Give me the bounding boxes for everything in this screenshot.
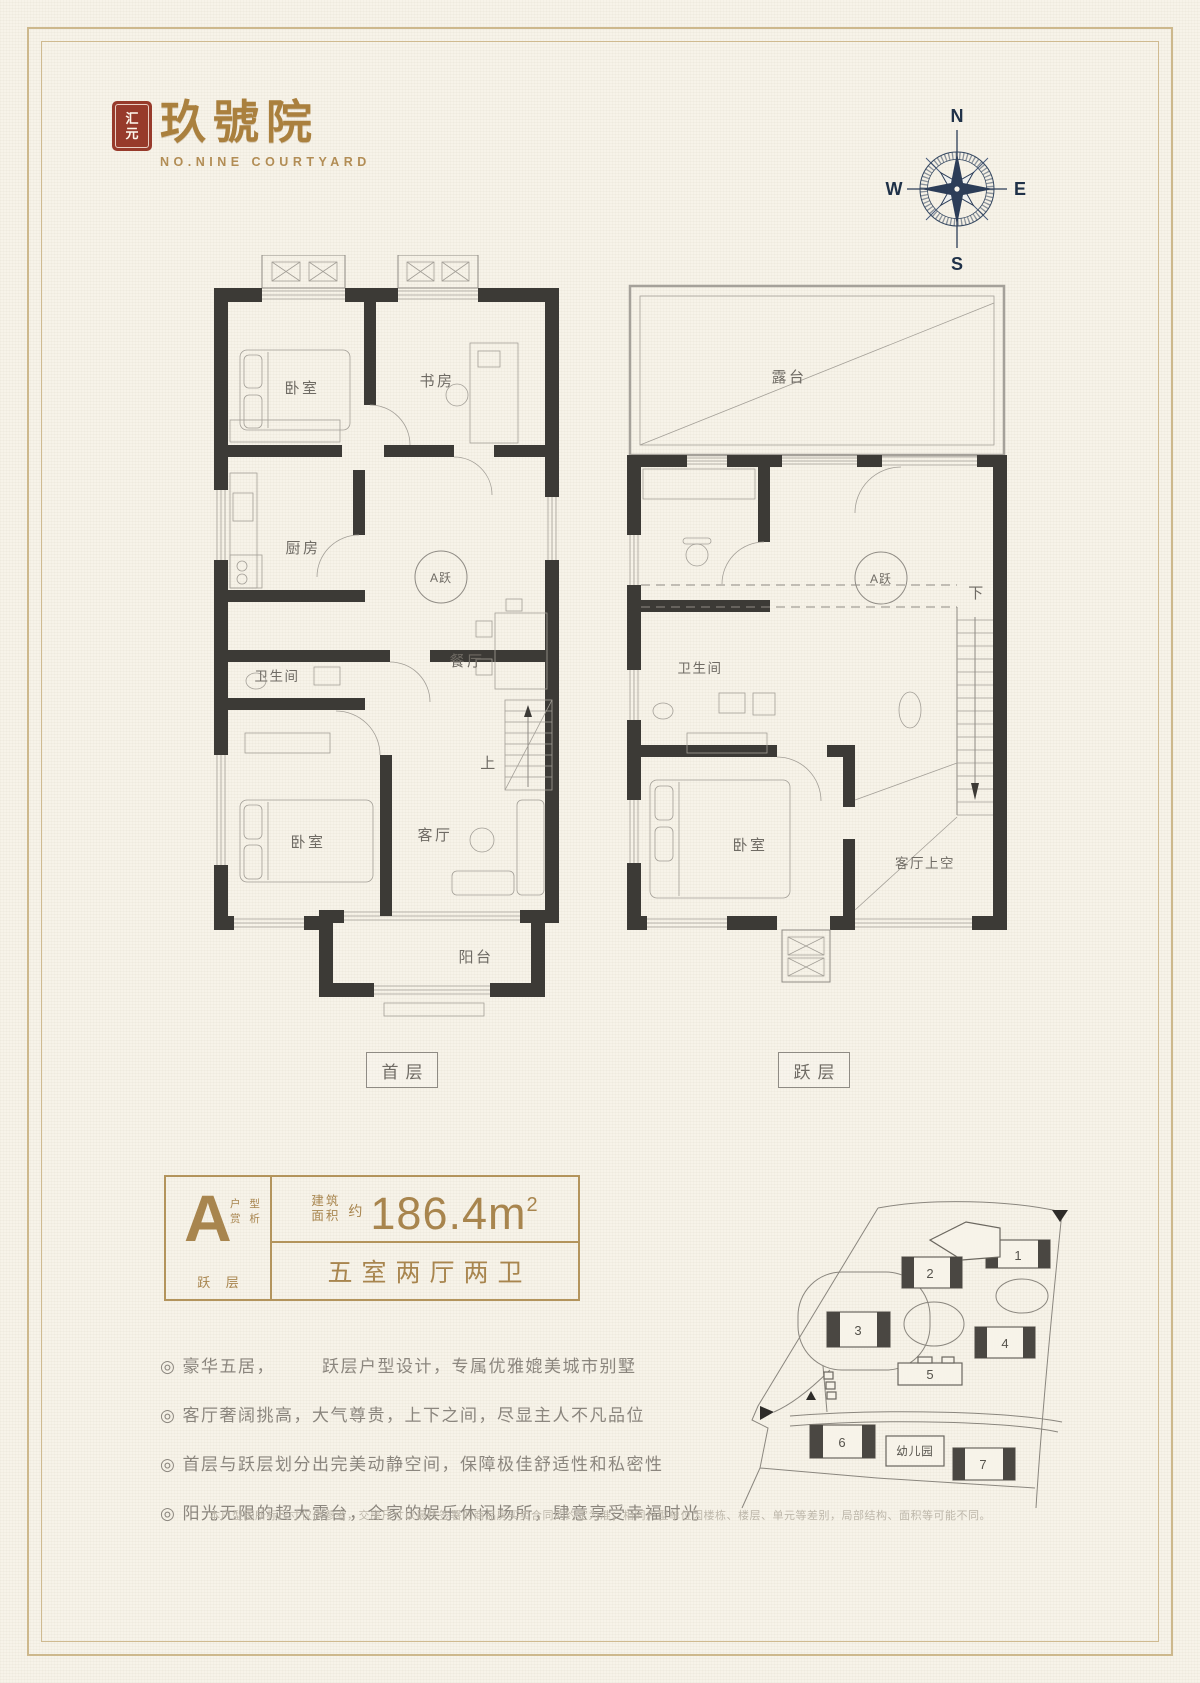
floor1-bath-label: 卫生间 [255, 669, 300, 684]
unit-info-block: A 户 型赏 析 跃 层 建筑面积 约 186.4m2 五室两厅两卫 [164, 1175, 580, 1301]
brand-subtitle: NO.NINE COURTYARD [160, 155, 460, 169]
building-3: 3 [827, 1312, 890, 1347]
building-6-number: 6 [838, 1435, 845, 1450]
floor2-stairs-down-label: 下 [968, 585, 986, 602]
entrance-marker-icon [760, 1406, 774, 1420]
unit-area-cell: 建筑面积 约 186.4m2 五室两厅两卫 [272, 1177, 578, 1299]
area-number: 186.4m [370, 1188, 526, 1239]
floor2-tag-text: 跃层 [787, 1058, 842, 1083]
floor1-bedroom-bottom-label: 卧室 [290, 834, 325, 851]
unit-area-approx: 约 [348, 1201, 362, 1221]
floor1-balcony-label: 阳台 [458, 949, 493, 966]
floor1-stairs-up-label: 上 [480, 755, 498, 772]
bay-window-icon [262, 255, 345, 288]
loft-floor-plan: 露台 [627, 255, 1007, 1020]
building-7-number: 7 [979, 1457, 986, 1472]
unit-area-label: 建筑面积 [311, 1194, 340, 1224]
feature-item: ◎ 豪华五居， 跃层户型设计，专属优雅媲美城市别墅 [160, 1352, 700, 1377]
building-4: 4 [975, 1327, 1035, 1358]
compass-east-label: E [1014, 179, 1026, 199]
building-5-number: 5 [926, 1367, 933, 1382]
compass-west-label: W [886, 179, 903, 199]
bay-window-icon [398, 255, 478, 288]
floor1-tag: 首层 [366, 1052, 438, 1088]
stairs-down-icon [957, 607, 993, 815]
floorplan-poster: { "logo": { "seal_top": "汇", "seal_botto… [0, 0, 1200, 1683]
entrance-marker-icon [806, 1391, 816, 1400]
floor2-bedroom-label: 卧室 [732, 837, 767, 854]
floor1-kitchen-label: 厨房 [285, 540, 320, 557]
disclaimer-text: 本户型图所标尺寸仅供参考，交房尺寸以最终签署的商品房买卖合同的约定为准；相同户型… [0, 1507, 1200, 1523]
floor1-study-label: 书房 [419, 373, 454, 390]
building-7: 7 [953, 1448, 1015, 1480]
brand-seal: 汇 元 [112, 101, 152, 151]
unit-type-letter: A [184, 1185, 232, 1251]
floor2-bath-label: 卫生间 [678, 661, 723, 676]
building-2: 2 [902, 1222, 1000, 1288]
floor1-unit-badge: A跃 [430, 571, 452, 585]
seal-char-bottom: 元 [125, 127, 138, 141]
building-4-number: 4 [1001, 1336, 1008, 1351]
unit-type-caption-row1: 户 型 [230, 1198, 263, 1210]
compass-north-label: N [951, 106, 964, 126]
unit-layout: 五室两厅两卫 [272, 1243, 578, 1299]
floor2-living-void-label: 客厅上空 [895, 855, 955, 871]
stairs-up-icon [505, 700, 552, 790]
floor2-tag: 跃层 [778, 1052, 850, 1088]
bay-window-icon [782, 930, 830, 982]
feature-item: ◎ 首层与跃层划分出完美动静空间，保障极佳舒适性和私密性 [160, 1450, 700, 1475]
building-3-number: 3 [854, 1323, 861, 1338]
feature-item: ◎ 客厅奢阔挑高，大气尊贵，上下之间，尽显主人不凡品位 [160, 1401, 700, 1426]
floor1-living-label: 客厅 [417, 827, 452, 844]
unit-type-caption-row2: 赏 析 [230, 1213, 263, 1225]
building-2-number: 2 [926, 1266, 933, 1281]
floor2-terrace-label: 露台 [771, 369, 806, 386]
kindergarten-label: 幼儿园 [896, 1445, 934, 1458]
floor1-tag-text: 首层 [375, 1058, 430, 1083]
brand-title: 玖號院 [160, 96, 420, 148]
unit-area-value: 186.4m2 [370, 1183, 538, 1236]
floor1-bedroom-top-label: 卧室 [284, 380, 319, 397]
unit-type-cell: A 户 型赏 析 跃 层 [166, 1177, 272, 1299]
seal-char-top: 汇 [125, 112, 138, 126]
floor2-unit-badge: A跃 [870, 572, 892, 586]
area-label-row2: 面积 [311, 1209, 340, 1223]
entrance-marker-icon [1052, 1210, 1068, 1222]
unit-area-row: 建筑面积 约 186.4m2 [272, 1177, 578, 1243]
brand-seal-border: 汇 元 [115, 104, 149, 148]
building-5: 5 [898, 1357, 962, 1385]
ground-floor-plan: A跃 卧室 书房 厨房 卫生间 餐厅 卧室 客厅 上 阳台 [214, 255, 559, 1020]
building-6: 6 [810, 1425, 875, 1458]
area-exponent: 2 [527, 1194, 539, 1216]
building-1-number: 1 [1014, 1248, 1021, 1263]
unit-type-floor: 跃 层 [166, 1272, 270, 1291]
kindergarten-block: 幼儿园 [886, 1436, 944, 1466]
compass-rose-icon: N S W E [877, 88, 1037, 278]
unit-type-caption: 户 型赏 析 [230, 1197, 263, 1227]
floor1-dining-label: 餐厅 [449, 653, 484, 670]
area-label-row1: 建筑 [311, 1194, 340, 1208]
site-plan-map: 1 2 3 4 5 6 7 幼儿园 [690, 1110, 1080, 1510]
